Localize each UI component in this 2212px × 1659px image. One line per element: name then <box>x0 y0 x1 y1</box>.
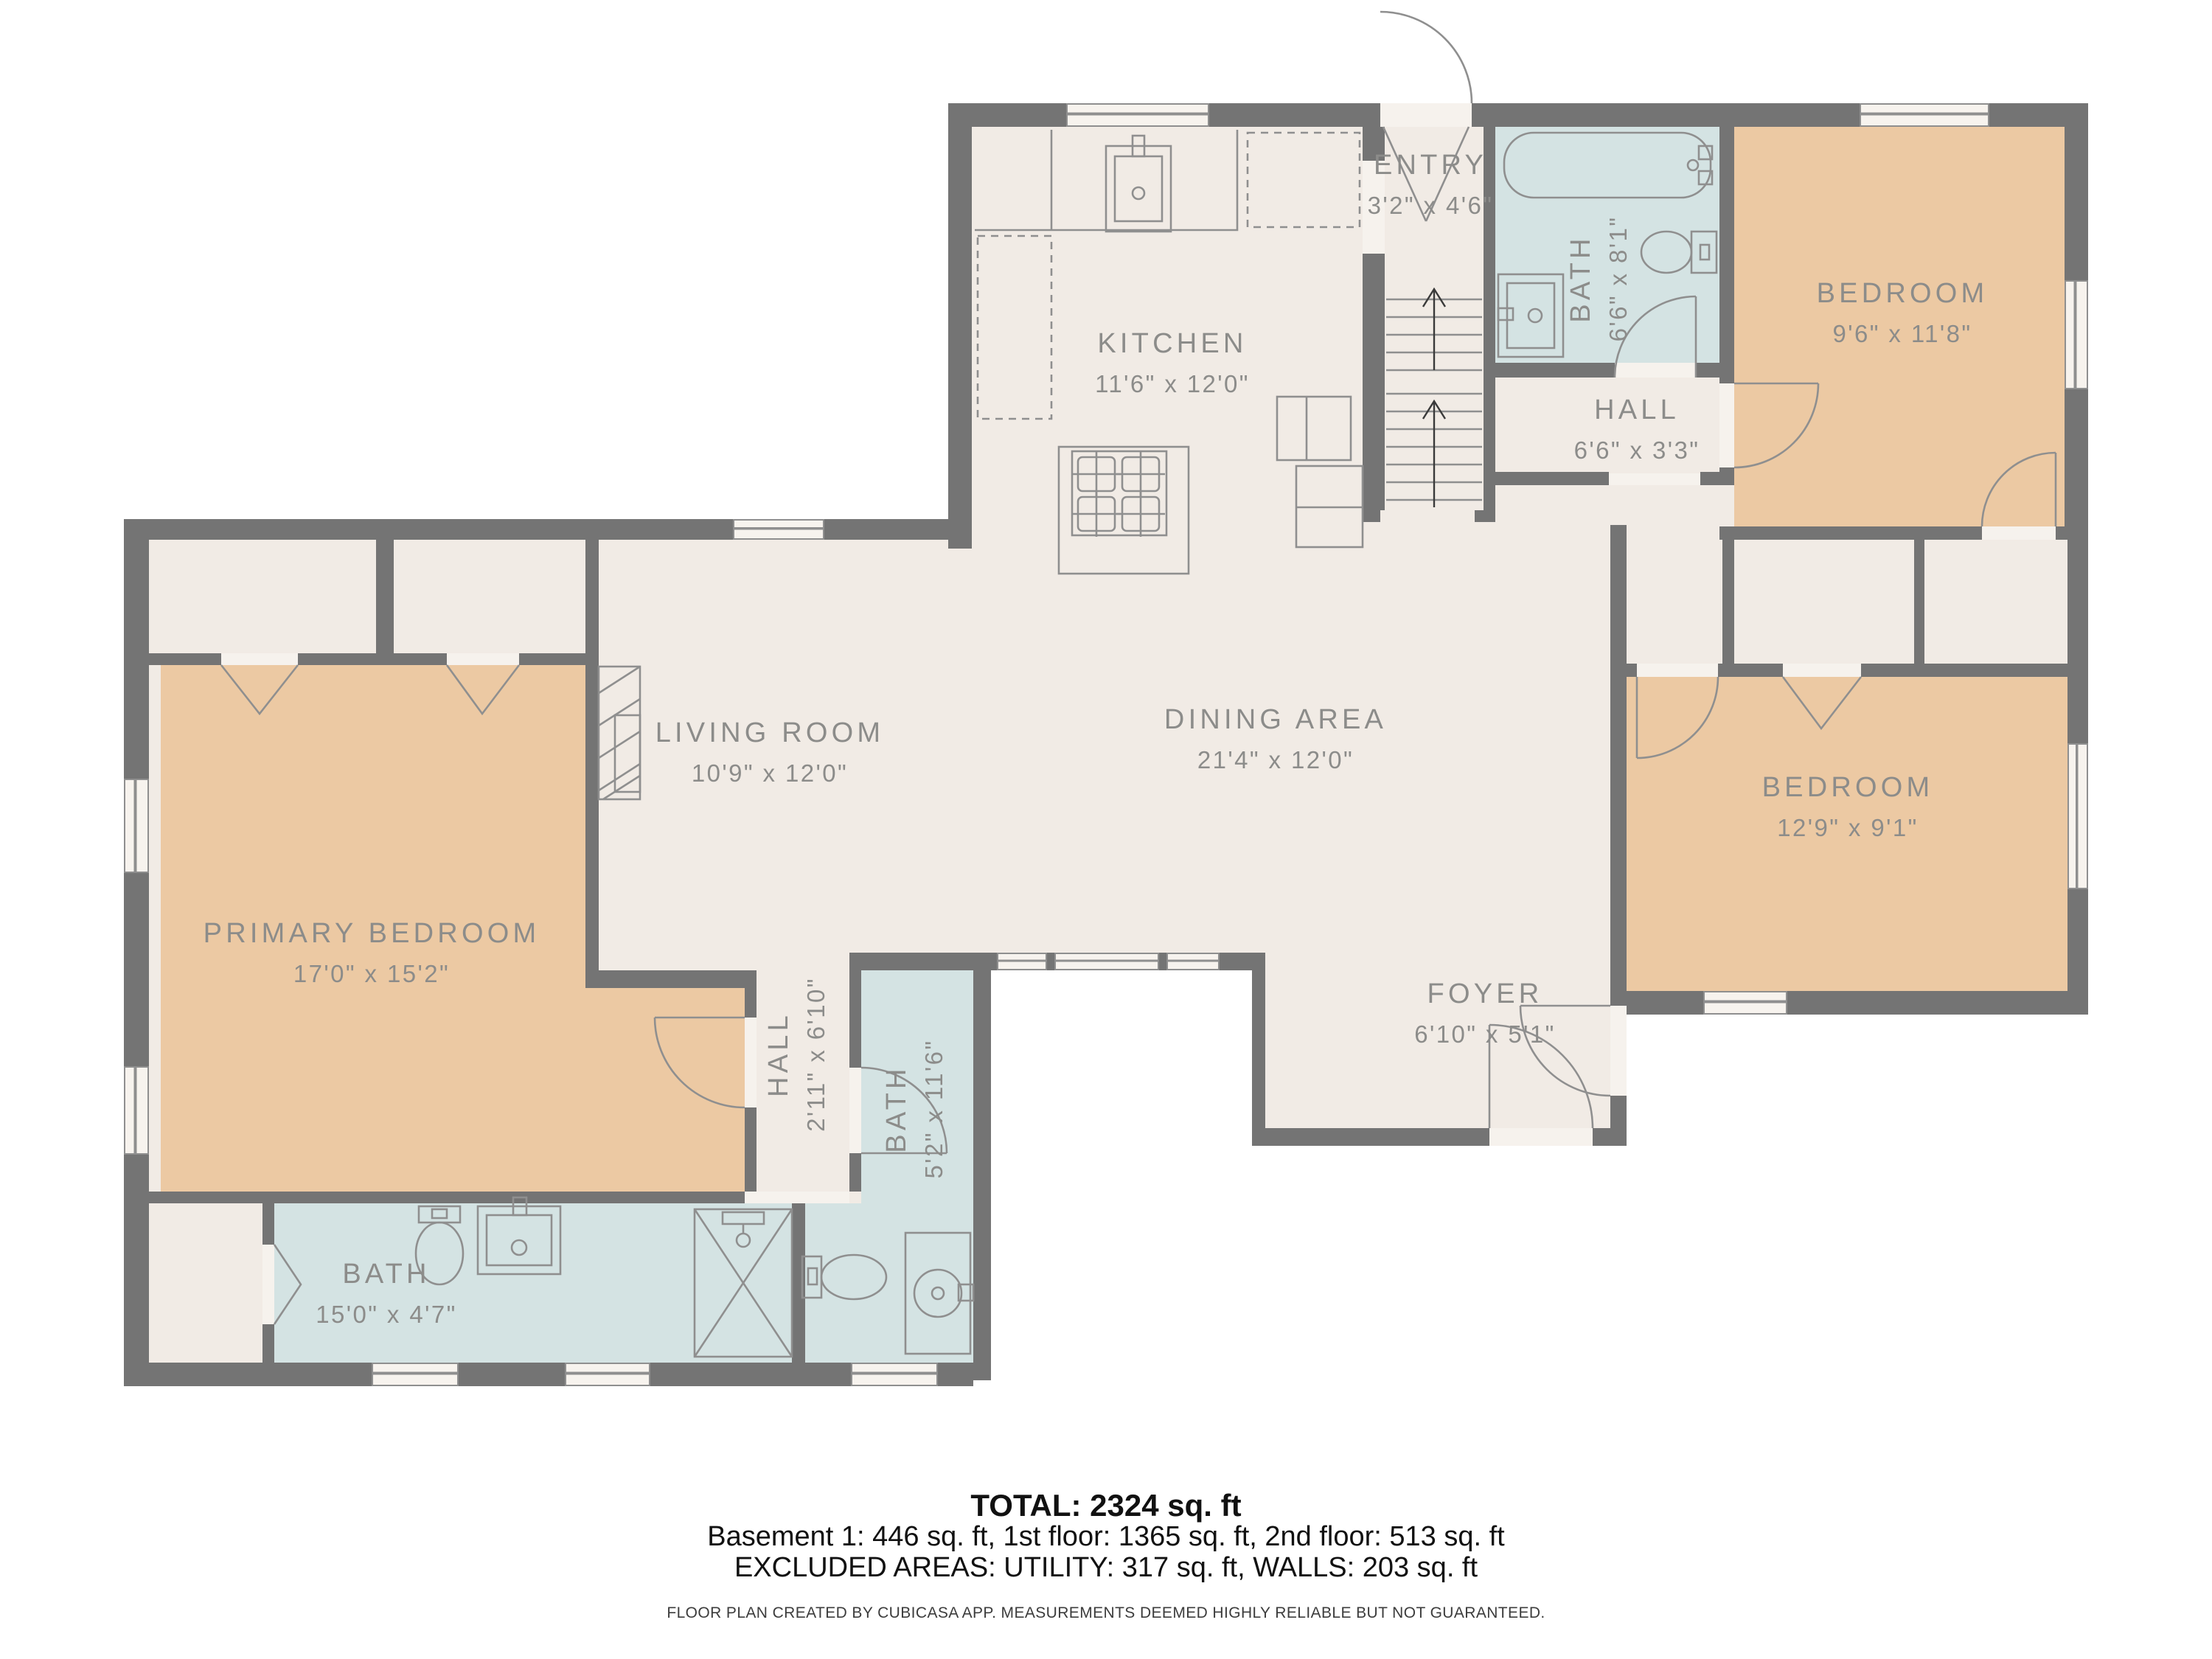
stove <box>1072 451 1165 537</box>
sink <box>478 1197 560 1274</box>
room-label-bedroom2: BEDROOM12'9" x 9'1" <box>1762 773 1934 844</box>
door-swing <box>1982 453 2056 526</box>
refrigerator <box>1277 397 1351 460</box>
fireplace <box>599 667 640 799</box>
closet-door <box>447 665 519 714</box>
room-label-bath3: BATH15'0" x 4'7" <box>316 1259 456 1330</box>
room-label-hall2: HALL2'11" x 6'10" <box>764 977 832 1132</box>
toilet <box>1641 232 1717 273</box>
room-label-foyer: FOYER6'10" x 5'1" <box>1414 979 1555 1050</box>
room-label-living: LIVING ROOM10'9" x 12'0" <box>655 718 885 789</box>
sink <box>905 1233 973 1354</box>
room-label-dining: DINING AREA21'4" x 12'0" <box>1164 705 1387 776</box>
kitchen-sink <box>1106 136 1171 232</box>
excluded-areas-text: EXCLUDED AREAS: UTILITY: 317 sq. ft, WAL… <box>0 1553 2212 1585</box>
toilet <box>802 1255 886 1299</box>
floor-areas-text: Basement 1: 446 sq. ft, 1st floor: 1365 … <box>0 1522 2212 1554</box>
sink <box>1498 274 1563 357</box>
shower <box>695 1209 792 1357</box>
door-swing <box>1637 677 1718 758</box>
room-label-entry: ENTRY3'2" x 4'6" <box>1368 150 1494 221</box>
staircase <box>1386 289 1482 507</box>
total-area-text: TOTAL: 2324 sq. ft <box>0 1489 2212 1525</box>
room-label-kitchen: KITCHEN11'6" x 12'0" <box>1095 329 1250 400</box>
floor-plan: KITCHEN11'6" x 12'0" ENTRY3'2" x 4'6" BA… <box>0 0 2212 1659</box>
door-swing <box>655 1018 745 1107</box>
bathtub <box>1504 133 1712 198</box>
counter <box>1296 466 1363 547</box>
closet-door <box>1783 677 1861 728</box>
room-label-hall1: HALL6'6" x 3'3" <box>1574 395 1700 466</box>
closet-door <box>274 1245 301 1324</box>
room-label-bath1: BATH6'6" x 8'1" <box>1566 216 1634 342</box>
disclaimer-text: FLOOR PLAN CREATED BY CUBICASA APP. MEAS… <box>0 1604 2212 1622</box>
door-swing <box>1734 383 1818 467</box>
closet-door <box>221 665 298 714</box>
room-label-bedroom1: BEDROOM9'6" x 11'8" <box>1817 279 1989 349</box>
floor-plan-page: KITCHEN11'6" x 12'0" ENTRY3'2" x 4'6" BA… <box>0 0 2212 1659</box>
room-label-primary: PRIMARY BEDROOM17'0" x 15'2" <box>204 919 540 990</box>
room-label-bath2: BATH5'2" x 11'6" <box>882 1040 950 1179</box>
